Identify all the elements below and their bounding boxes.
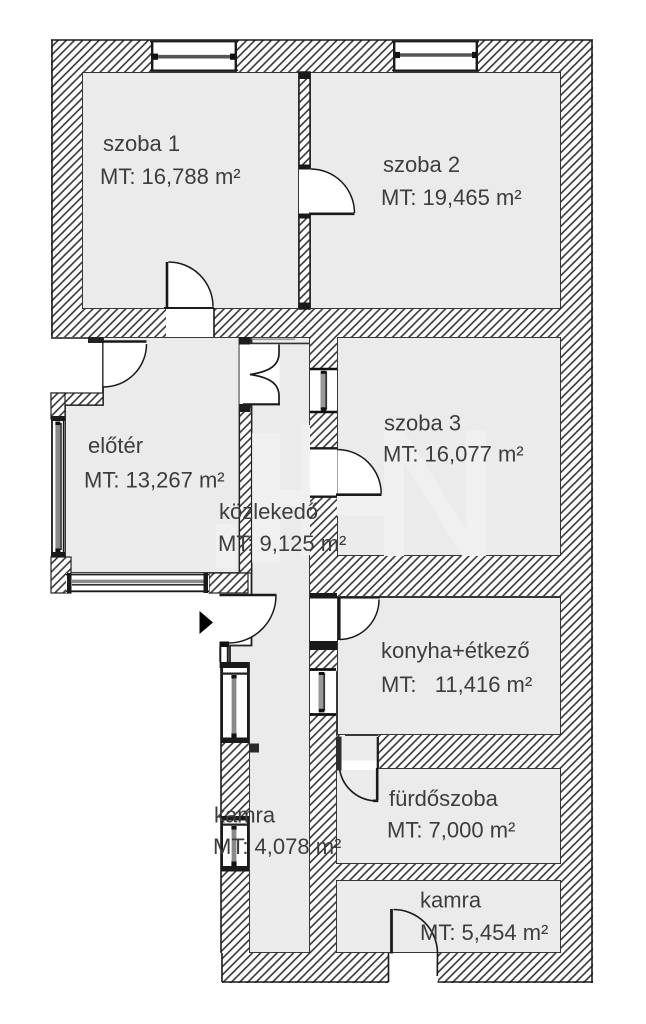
svg-text:MT: 9,125 m²: MT: 9,125 m² bbox=[218, 531, 346, 556]
svg-text:fürdőszoba: fürdőszoba bbox=[389, 786, 499, 811]
svg-text:MT: 16,788 m²: MT: 16,788 m² bbox=[100, 164, 241, 189]
svg-text:MT: 4,078 m²: MT: 4,078 m² bbox=[213, 834, 341, 859]
svg-text:előtér: előtér bbox=[88, 433, 143, 458]
svg-text:MT: 11,416 m²: MT: 11,416 m² bbox=[381, 672, 532, 697]
svg-text:MT: 19,465 m²: MT: 19,465 m² bbox=[381, 185, 522, 210]
svg-text:közlekedő: közlekedő bbox=[219, 499, 318, 524]
svg-text:kamra: kamra bbox=[420, 888, 482, 913]
svg-text:MT: 5,454 m²: MT: 5,454 m² bbox=[420, 920, 548, 945]
svg-text:MT: 7,000 m²: MT: 7,000 m² bbox=[387, 818, 515, 843]
svg-text:konyha+étkező: konyha+étkező bbox=[381, 638, 530, 663]
svg-text:MT: 13,267 m²: MT: 13,267 m² bbox=[84, 468, 225, 493]
svg-text:szoba 2: szoba 2 bbox=[383, 152, 460, 177]
svg-text:MT: 16,077 m²: MT: 16,077 m² bbox=[383, 442, 524, 467]
svg-text:kamra: kamra bbox=[214, 803, 276, 828]
svg-text:szoba 1: szoba 1 bbox=[103, 131, 180, 156]
svg-text:szoba 3: szoba 3 bbox=[384, 411, 461, 436]
